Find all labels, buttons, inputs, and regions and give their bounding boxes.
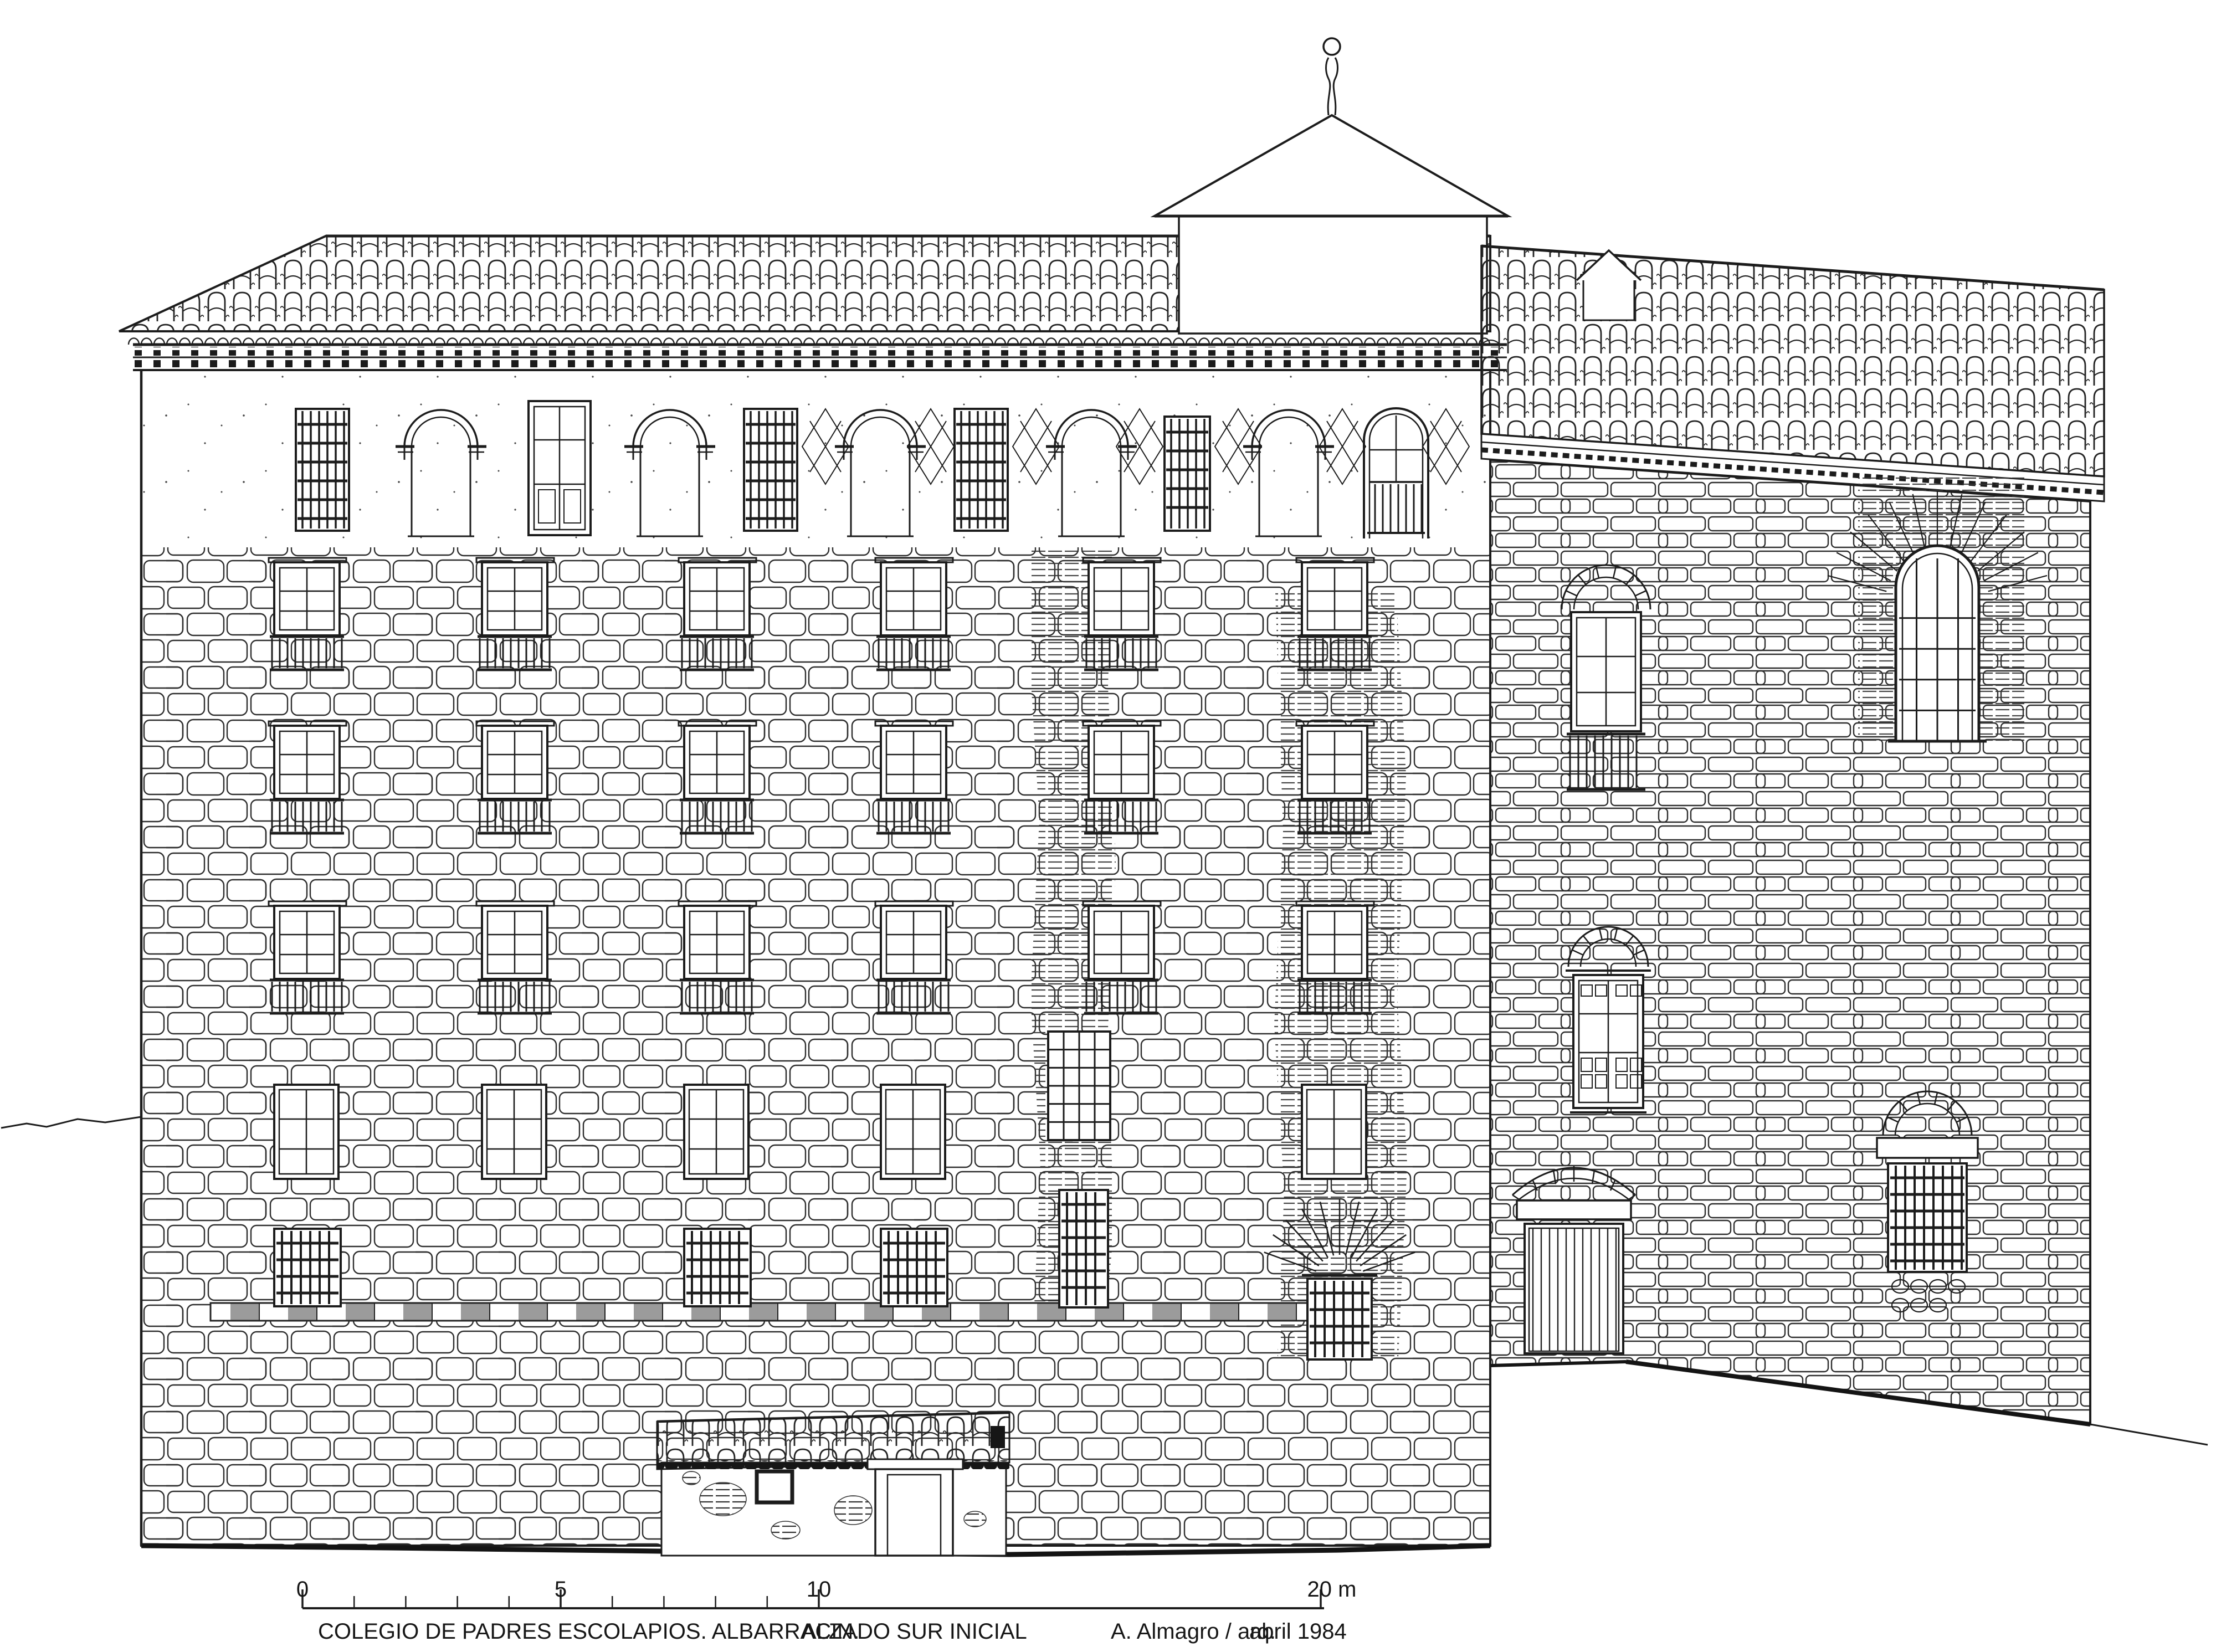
caption-date: abril 1984	[1249, 1619, 1347, 1644]
window-barred	[1888, 1163, 1967, 1272]
caption-drawing-name: ALZADO SUR INICIAL	[802, 1619, 1027, 1644]
window-barred	[684, 1229, 751, 1306]
window-barred	[274, 1229, 341, 1306]
right-arched-multipane-window	[1828, 474, 2047, 742]
main-cornice	[127, 330, 1507, 370]
gallery-grille-window	[1165, 417, 1210, 531]
door-planks	[1529, 1228, 1619, 1351]
gallery-grille-window	[955, 409, 1008, 531]
window-barred	[881, 1229, 947, 1306]
window-casement	[881, 1085, 945, 1179]
dentil-row-1	[133, 347, 1507, 356]
caption-project: COLEGIO DE PADRES ESCOLAPIOS. ALBARRACIN…	[318, 1619, 859, 1644]
tower-body	[1179, 216, 1487, 334]
scale-label: 5	[555, 1577, 567, 1602]
dentil-row-2	[133, 360, 1507, 368]
window-casement	[274, 1085, 338, 1179]
window-casement	[684, 1085, 748, 1179]
gallery-grille-window	[296, 409, 349, 531]
window-multipane	[1048, 1032, 1110, 1140]
annex-outbuilding	[657, 1413, 1009, 1556]
window-barred	[1059, 1190, 1108, 1307]
gallery-shuttered-door	[529, 401, 591, 535]
window-casement	[482, 1085, 546, 1179]
annex-door-lintel	[868, 1459, 963, 1469]
window-barred	[1307, 1279, 1372, 1359]
elevation-drawing: 051020 m COLEGIO DE PADRES ESCOLAPIOS. A…	[0, 0, 2216, 1652]
gallery-grille-window	[744, 409, 797, 531]
tower-finial-ball	[1324, 38, 1340, 55]
scale-label: 10	[807, 1577, 832, 1602]
annex-dark-patch	[991, 1426, 1005, 1448]
annex-small-window	[757, 1471, 792, 1502]
main-building	[141, 370, 1490, 1554]
window-casement	[1302, 1085, 1366, 1179]
drawing-sheet: 051020 m COLEGIO DE PADRES ESCOLAPIOS. A…	[0, 0, 2216, 1652]
scale-label: 20 m	[1307, 1577, 1357, 1602]
scale-label: 0	[296, 1577, 309, 1602]
title-block: COLEGIO DE PADRES ESCOLAPIOS. ALBARRACIN…	[318, 1619, 1347, 1644]
checkerboard-band	[211, 1303, 1330, 1321]
gallery-arched-balcony-window	[1364, 408, 1428, 538]
